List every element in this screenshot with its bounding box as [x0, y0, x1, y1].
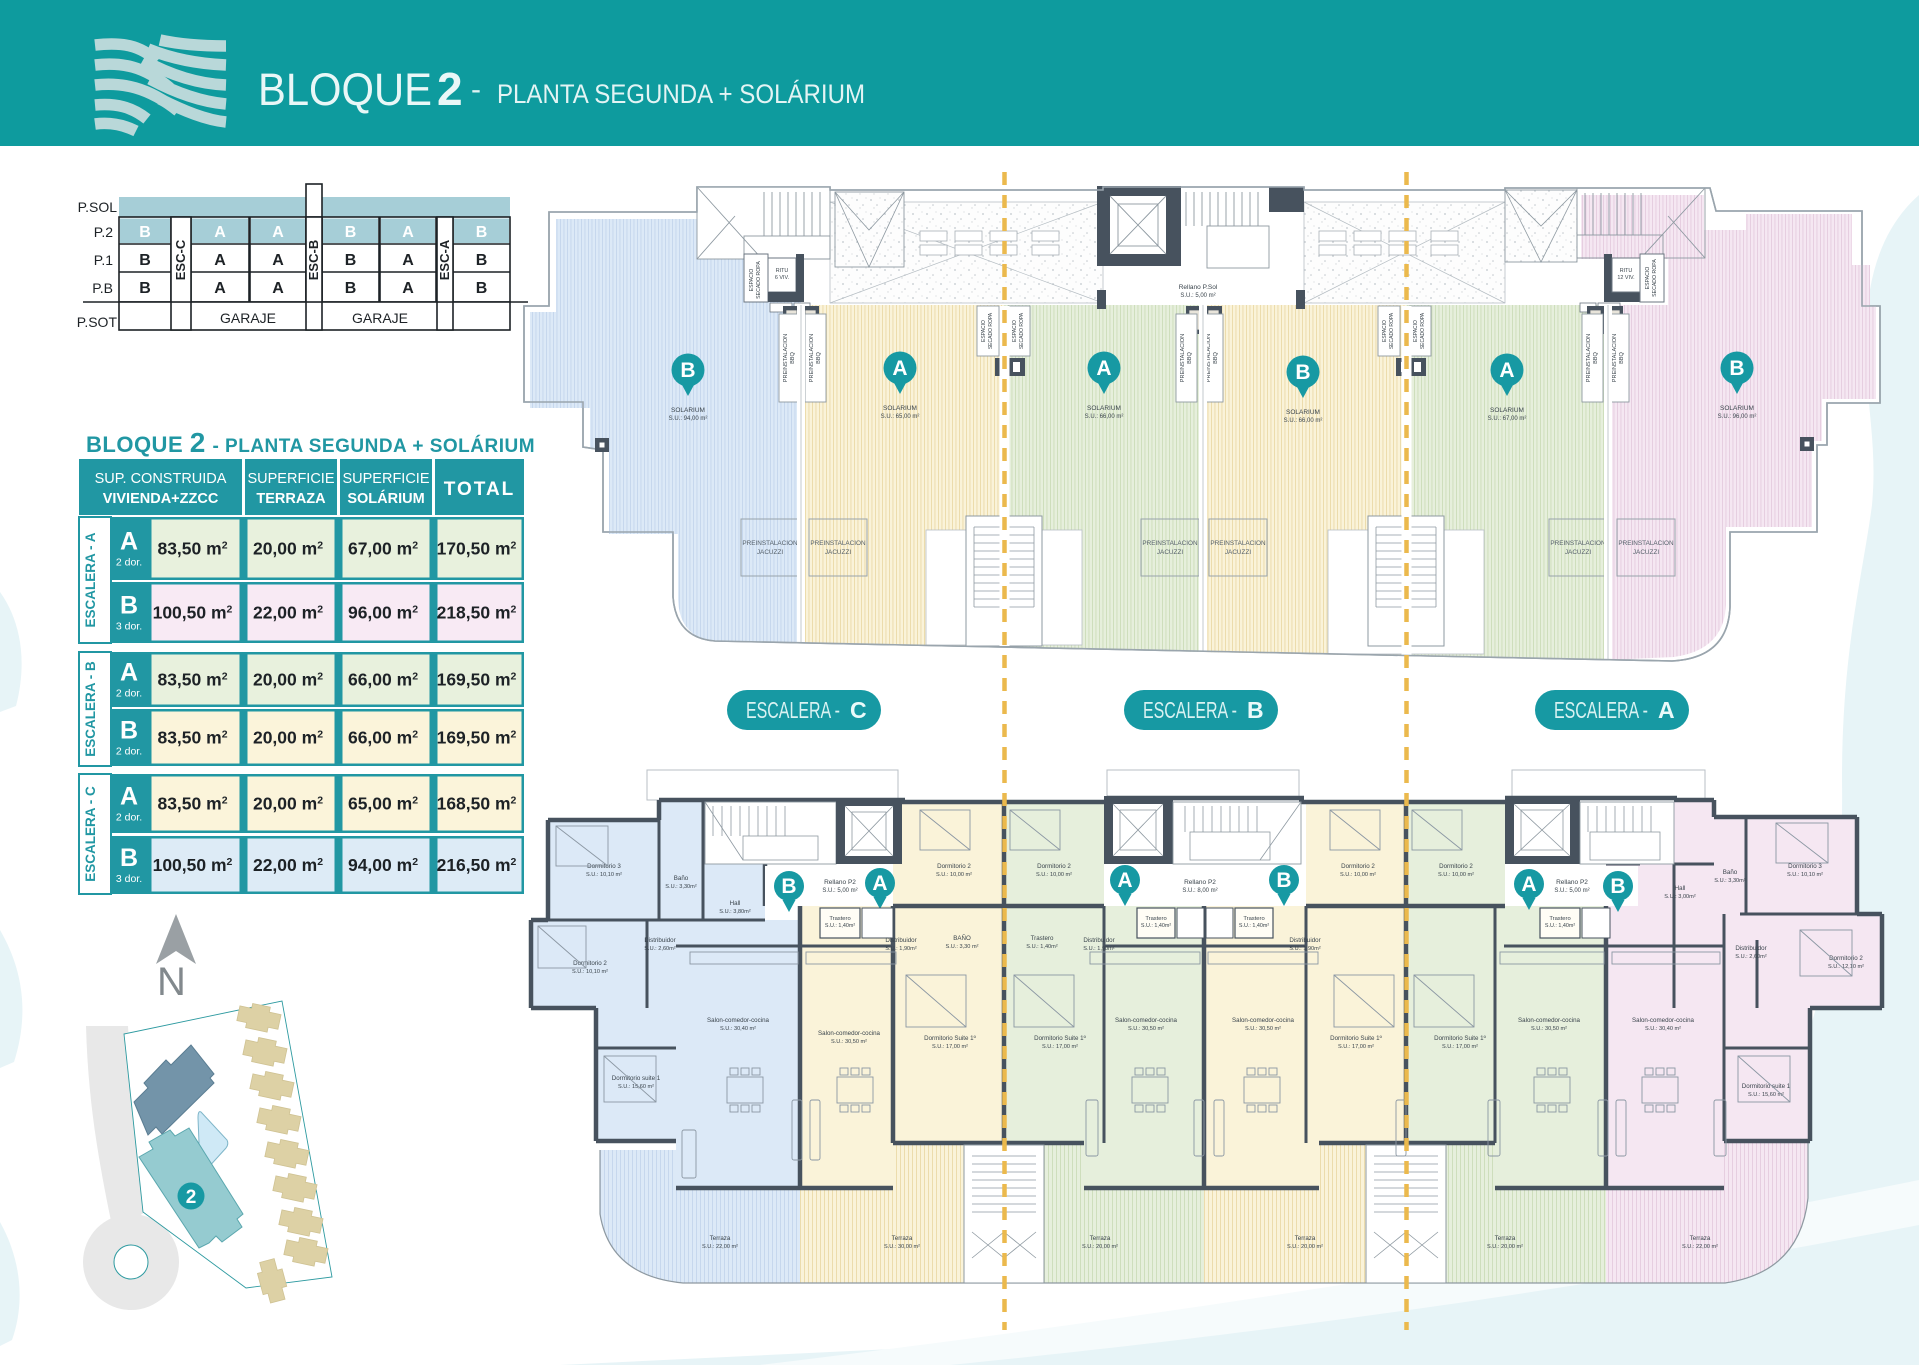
- svg-text:SECADO ROPA: SECADO ROPA: [1019, 312, 1025, 349]
- svg-text:Terraza: Terraza: [1690, 1235, 1711, 1242]
- svg-text:169,50 m2: 169,50 m2: [437, 728, 517, 748]
- svg-text:VIVIENDA+ZZCC: VIVIENDA+ZZCC: [103, 491, 219, 507]
- svg-text:216,50 m2: 216,50 m2: [437, 855, 517, 875]
- svg-text:B: B: [680, 359, 695, 382]
- svg-text:2 dor.: 2 dor.: [116, 746, 142, 758]
- svg-text:PREINSTALACION: PREINSTALACION: [1612, 334, 1618, 382]
- svg-text:PREINSTALACION: PREINSTALACION: [783, 334, 789, 382]
- svg-text:Salon-comedor-cocina: Salon-comedor-cocina: [818, 1030, 880, 1037]
- svg-text:S.U.: 22,00 m²: S.U.: 22,00 m²: [702, 1244, 738, 1250]
- svg-text:SOLARIUM: SOLARIUM: [883, 405, 917, 412]
- svg-text:Dormitorio Suite 1º: Dormitorio Suite 1º: [1034, 1035, 1087, 1042]
- svg-text:ESC-B: ESC-B: [306, 240, 321, 280]
- svg-text:RITU: RITU: [776, 268, 789, 274]
- svg-text:S.U.: 1,40m²: S.U.: 1,40m²: [1141, 923, 1171, 929]
- svg-text:B: B: [1276, 869, 1291, 892]
- svg-text:Dormitorio Suite 1º: Dormitorio Suite 1º: [1434, 1035, 1487, 1042]
- svg-text:S.U.: 30,40 m²: S.U.: 30,40 m²: [1645, 1026, 1681, 1032]
- svg-text:B: B: [120, 844, 138, 872]
- svg-text:100,50 m2: 100,50 m2: [153, 855, 233, 875]
- svg-text:A: A: [1096, 357, 1111, 380]
- svg-text:Baño: Baño: [674, 875, 689, 882]
- svg-text:SOLARIUM: SOLARIUM: [1087, 405, 1121, 412]
- svg-text:Distribuidor: Distribuidor: [885, 937, 916, 944]
- svg-text:SOLARIUM: SOLARIUM: [671, 407, 705, 414]
- svg-text:Terraza: Terraza: [710, 1235, 731, 1242]
- svg-text:B: B: [476, 280, 488, 297]
- svg-text:PREINSTALACION: PREINSTALACION: [1180, 334, 1186, 382]
- svg-text:S.U.: 1,40m²: S.U.: 1,40m²: [1026, 944, 1058, 950]
- svg-text:S.U.: 10,10 m²: S.U.: 10,10 m²: [572, 969, 608, 975]
- svg-text:TERRAZA: TERRAZA: [256, 491, 326, 507]
- svg-text:A: A: [1499, 359, 1514, 382]
- svg-text:100,50 m2: 100,50 m2: [153, 603, 233, 623]
- svg-text:S.U.: 30,50 m²: S.U.: 30,50 m²: [831, 1039, 867, 1045]
- svg-text:ESPACIO: ESPACIO: [1382, 320, 1388, 342]
- svg-text:Dormitorio 2: Dormitorio 2: [1037, 863, 1071, 870]
- svg-text:A: A: [402, 252, 414, 269]
- svg-text:Dormitorio Suite 1º: Dormitorio Suite 1º: [1330, 1035, 1383, 1042]
- svg-text:A: A: [402, 224, 414, 241]
- svg-text:218,50 m2: 218,50 m2: [437, 603, 517, 623]
- svg-text:Salon-comedor-cocina: Salon-comedor-cocina: [1232, 1017, 1294, 1024]
- svg-text:Terraza: Terraza: [892, 1235, 913, 1242]
- svg-text:S.U.: 30,00 m²: S.U.: 30,00 m²: [884, 1244, 920, 1250]
- svg-text:PREINSTALACION: PREINSTALACION: [1550, 540, 1606, 547]
- svg-text:Rellano P2: Rellano P2: [824, 879, 856, 886]
- svg-text:A: A: [272, 280, 284, 297]
- svg-text:S.U.: 3,80m²: S.U.: 3,80m²: [719, 909, 751, 915]
- svg-text:SOLARIUM: SOLARIUM: [1490, 407, 1524, 414]
- svg-text:83,50 m2: 83,50 m2: [157, 728, 227, 748]
- svg-text:B: B: [1247, 697, 1264, 723]
- svg-text:2 dor.: 2 dor.: [116, 688, 142, 700]
- svg-text:P.B: P.B: [92, 280, 113, 296]
- svg-text:S.U.: 30,50 m²: S.U.: 30,50 m²: [1128, 1026, 1164, 1032]
- svg-text:ESPACIO: ESPACIO: [749, 269, 755, 292]
- svg-text:S.U.: 1,90m²: S.U.: 1,90m²: [1083, 946, 1115, 952]
- svg-text:S.U.: 17,00 m²: S.U.: 17,00 m²: [932, 1044, 968, 1050]
- svg-text:SECADO ROPA: SECADO ROPA: [988, 312, 994, 349]
- svg-text:SECADO ROPA: SECADO ROPA: [1420, 312, 1426, 349]
- svg-text:Hall: Hall: [730, 900, 741, 907]
- svg-text:S.U.: 22,00 m²: S.U.: 22,00 m²: [1682, 1244, 1718, 1250]
- svg-text:S.U.: 20,00 m²: S.U.: 20,00 m²: [1082, 1244, 1118, 1250]
- svg-text:S.U.: 2,60m²: S.U.: 2,60m²: [1735, 954, 1767, 960]
- svg-text:B: B: [139, 252, 151, 269]
- svg-text:PREINSTALACION: PREINSTALACION: [810, 540, 866, 547]
- svg-text:20,00 m2: 20,00 m2: [253, 728, 323, 748]
- svg-text:BLOQUE: BLOQUE: [258, 64, 432, 115]
- svg-text:S.U.: 1,90m²: S.U.: 1,90m²: [885, 946, 917, 952]
- svg-text:ESPACIO: ESPACIO: [1012, 320, 1018, 342]
- svg-text:SUPERFICIE: SUPERFICIE: [342, 471, 429, 487]
- svg-text:S.U.: 17,00 m²: S.U.: 17,00 m²: [1442, 1044, 1478, 1050]
- svg-text:JACUZZI: JACUZZI: [1157, 549, 1183, 556]
- svg-text:A: A: [1521, 873, 1536, 896]
- svg-text:A: A: [214, 252, 226, 269]
- svg-text:83,50 m2: 83,50 m2: [157, 539, 227, 559]
- svg-text:S.U.: 65,00 m²: S.U.: 65,00 m²: [881, 414, 920, 420]
- svg-text:JACUZZI: JACUZZI: [757, 549, 783, 556]
- svg-text:P.2: P.2: [94, 224, 113, 240]
- svg-text:B: B: [345, 224, 357, 241]
- svg-text:BBQ: BBQ: [790, 351, 796, 363]
- svg-text:B: B: [345, 280, 357, 297]
- svg-text:A: A: [272, 224, 284, 241]
- svg-text:Trastero: Trastero: [829, 916, 850, 922]
- svg-text:ESCALERA -: ESCALERA -: [1554, 697, 1648, 723]
- svg-text:Trastero: Trastero: [1031, 935, 1054, 942]
- svg-text:B: B: [139, 280, 151, 297]
- svg-text:Dormitorio 3: Dormitorio 3: [1788, 863, 1822, 870]
- svg-text:JACUZZI: JACUZZI: [825, 549, 851, 556]
- svg-text:S.U.: 17,00 m²: S.U.: 17,00 m²: [1338, 1044, 1374, 1050]
- svg-text:SUPERFICIE: SUPERFICIE: [247, 471, 334, 487]
- svg-text:Distribuidor: Distribuidor: [644, 937, 675, 944]
- svg-text:BBQ: BBQ: [1619, 351, 1625, 363]
- svg-text:83,50 m2: 83,50 m2: [157, 670, 227, 690]
- svg-text:ESPACIO: ESPACIO: [981, 320, 987, 342]
- svg-text:22,00 m2: 22,00 m2: [253, 855, 323, 875]
- svg-text:A: A: [120, 659, 138, 687]
- svg-text:66,00 m2: 66,00 m2: [348, 670, 418, 690]
- svg-text:C: C: [850, 697, 867, 723]
- svg-text:67,00 m2: 67,00 m2: [348, 539, 418, 559]
- svg-text:Rellano P2: Rellano P2: [1556, 879, 1588, 886]
- svg-text:83,50 m2: 83,50 m2: [157, 794, 227, 814]
- svg-text:ESCALERA - B: ESCALERA - B: [83, 661, 98, 757]
- svg-text:Trastero: Trastero: [1243, 916, 1264, 922]
- svg-text:PREINSTALACION: PREINSTALACION: [1586, 334, 1592, 382]
- svg-text:B: B: [476, 224, 488, 241]
- svg-text:PREINSTALACION: PREINSTALACION: [1142, 540, 1198, 547]
- svg-text:S.U.: 8,00 m²: S.U.: 8,00 m²: [1182, 888, 1217, 894]
- svg-text:S.U.: 3,30m²: S.U.: 3,30m²: [665, 884, 697, 890]
- svg-text:S.U.: 30,50 m²: S.U.: 30,50 m²: [1245, 1026, 1281, 1032]
- svg-text:P.SOL: P.SOL: [78, 199, 118, 215]
- svg-text:Trastero: Trastero: [1549, 916, 1570, 922]
- svg-text:B: B: [1295, 361, 1310, 384]
- svg-text:Rellano P2: Rellano P2: [1184, 879, 1216, 886]
- svg-text:S.U.: 1,90m²: S.U.: 1,90m²: [1289, 946, 1321, 952]
- svg-text:S.U.: 20,00 m²: S.U.: 20,00 m²: [1487, 1244, 1523, 1250]
- svg-text:S.U.: 66,00 m²: S.U.: 66,00 m²: [1085, 414, 1124, 420]
- svg-text:S.U.: 10,00 m²: S.U.: 10,00 m²: [1438, 872, 1474, 878]
- svg-text:S.U.: 10,10 m²: S.U.: 10,10 m²: [1787, 872, 1823, 878]
- svg-text:Terraza: Terraza: [1495, 1235, 1516, 1242]
- svg-text:B: B: [781, 875, 796, 898]
- svg-text:SECADO ROPA: SECADO ROPA: [1389, 312, 1395, 349]
- svg-text:169,50 m2: 169,50 m2: [437, 670, 517, 690]
- svg-text:S.U.: 1,40m²: S.U.: 1,40m²: [825, 923, 855, 929]
- svg-text:BBQ: BBQ: [1213, 351, 1219, 363]
- svg-text:B: B: [139, 224, 151, 241]
- svg-text:BBQ: BBQ: [1187, 351, 1193, 363]
- svg-text:B: B: [1729, 357, 1744, 380]
- svg-text:B: B: [1610, 875, 1625, 898]
- svg-text:168,50 m2: 168,50 m2: [437, 794, 517, 814]
- svg-text:2 dor.: 2 dor.: [116, 557, 142, 569]
- svg-text:S.U.: 30,40 m²: S.U.: 30,40 m²: [720, 1026, 756, 1032]
- svg-text:ESC-C: ESC-C: [173, 239, 188, 280]
- svg-text:ESCALERA -: ESCALERA -: [746, 697, 840, 723]
- svg-text:SOLARIUM: SOLARIUM: [1720, 405, 1754, 412]
- svg-text:S.U.: 66,00 m²: S.U.: 66,00 m²: [1284, 418, 1323, 424]
- svg-text:PLANTA SEGUNDA + SOLÁRIUM: PLANTA SEGUNDA + SOLÁRIUM: [497, 79, 865, 109]
- svg-text:Salon-comedor-cocina: Salon-comedor-cocina: [1632, 1017, 1694, 1024]
- svg-text:GARAJE: GARAJE: [352, 310, 408, 326]
- svg-text:BBQ: BBQ: [1593, 351, 1599, 363]
- svg-text:6 VIV.: 6 VIV.: [775, 275, 789, 281]
- svg-text:S.U.: 1,40m²: S.U.: 1,40m²: [1239, 923, 1269, 929]
- svg-text:96,00 m2: 96,00 m2: [348, 603, 418, 623]
- svg-text:20,00 m2: 20,00 m2: [253, 794, 323, 814]
- svg-text:ESPACIO: ESPACIO: [1645, 267, 1651, 290]
- svg-text:S.U.: 20,00 m²: S.U.: 20,00 m²: [1287, 1244, 1323, 1250]
- svg-text:S.U.: 2,60m²: S.U.: 2,60m²: [644, 946, 676, 952]
- svg-text:S.U.: 10,00 m²: S.U.: 10,00 m²: [1036, 872, 1072, 878]
- svg-text:-: -: [471, 73, 481, 106]
- svg-text:2: 2: [437, 63, 463, 115]
- svg-text:S.U.: 17,00 m²: S.U.: 17,00 m²: [1042, 1044, 1078, 1050]
- svg-text:170,50 m2: 170,50 m2: [437, 539, 517, 559]
- svg-text:P.SOT: P.SOT: [77, 314, 118, 330]
- svg-text:Distribuidor: Distribuidor: [1289, 937, 1320, 944]
- svg-text:Distribuidor: Distribuidor: [1083, 937, 1114, 944]
- svg-text:ESCALERA -: ESCALERA -: [1143, 697, 1237, 723]
- svg-text:GARAJE: GARAJE: [220, 310, 276, 326]
- svg-text:JACUZZI: JACUZZI: [1225, 549, 1251, 556]
- svg-text:JACUZZI: JACUZZI: [1633, 549, 1659, 556]
- svg-text:S.U.: 5,00 m²: S.U.: 5,00 m²: [1554, 888, 1589, 894]
- svg-text:Terraza: Terraza: [1295, 1235, 1316, 1242]
- svg-text:A: A: [120, 528, 138, 556]
- svg-text:Salon-comedor-cocina: Salon-comedor-cocina: [1115, 1017, 1177, 1024]
- svg-text:S.U.: 5,00 m²: S.U.: 5,00 m²: [822, 888, 857, 894]
- svg-text:2: 2: [186, 1187, 197, 1208]
- svg-text:94,00 m2: 94,00 m2: [348, 855, 418, 875]
- svg-text:S.U.: 1,40m²: S.U.: 1,40m²: [1545, 923, 1575, 929]
- svg-text:S.U.: 3,30 m²: S.U.: 3,30 m²: [946, 944, 979, 950]
- svg-text:B: B: [120, 592, 138, 620]
- svg-text:SECADO ROPA: SECADO ROPA: [1652, 259, 1658, 297]
- svg-text:A: A: [120, 783, 138, 811]
- svg-text:Hall: Hall: [1675, 885, 1686, 892]
- svg-text:65,00 m2: 65,00 m2: [348, 794, 418, 814]
- svg-text:A: A: [402, 280, 414, 297]
- svg-text:Dormitorio 2: Dormitorio 2: [1439, 863, 1473, 870]
- svg-text:B: B: [120, 717, 138, 745]
- svg-text:S.U.: 94,00 m²: S.U.: 94,00 m²: [669, 416, 708, 422]
- svg-text:B: B: [345, 252, 357, 269]
- svg-text:A: A: [892, 357, 907, 380]
- svg-text:SOLÁRIUM: SOLÁRIUM: [347, 490, 424, 507]
- svg-text:JACUZZI: JACUZZI: [1565, 549, 1591, 556]
- svg-text:TOTAL: TOTAL: [444, 479, 516, 500]
- svg-text:BBQ: BBQ: [816, 351, 822, 363]
- svg-text:S.U.: 10,10 m²: S.U.: 10,10 m²: [586, 872, 622, 878]
- svg-text:S.U.: 30,50 m²: S.U.: 30,50 m²: [1531, 1026, 1567, 1032]
- svg-text:A: A: [1658, 697, 1675, 723]
- svg-text:PREINSTALACION: PREINSTALACION: [742, 540, 798, 547]
- svg-text:Distribuidor: Distribuidor: [1735, 945, 1766, 952]
- svg-text:A: A: [214, 224, 226, 241]
- svg-text:PREINSTALACION: PREINSTALACION: [809, 334, 815, 382]
- svg-text:Salon-comedor-cocina: Salon-comedor-cocina: [707, 1017, 769, 1024]
- svg-text:SOLARIUM: SOLARIUM: [1286, 409, 1320, 416]
- svg-text:S.U.: 10,00 m²: S.U.: 10,00 m²: [936, 872, 972, 878]
- svg-text:B: B: [476, 252, 488, 269]
- svg-text:ESCALERA - C: ESCALERA - C: [83, 786, 98, 882]
- svg-text:A: A: [272, 252, 284, 269]
- svg-text:S.U.: 96,00 m²: S.U.: 96,00 m²: [1718, 414, 1757, 420]
- svg-text:S.U.: 3,30m²: S.U.: 3,30m²: [1714, 878, 1746, 884]
- svg-text:A: A: [1117, 869, 1132, 892]
- svg-text:A: A: [214, 280, 226, 297]
- svg-text:S.U.: 67,00 m²: S.U.: 67,00 m²: [1488, 416, 1527, 422]
- svg-text:Salon-comedor-cocina: Salon-comedor-cocina: [1518, 1017, 1580, 1024]
- svg-text:Trastero: Trastero: [1145, 916, 1166, 922]
- svg-text:Terraza: Terraza: [1090, 1235, 1111, 1242]
- svg-text:S.U.: 3,00m²: S.U.: 3,00m²: [1664, 894, 1696, 900]
- svg-text:N: N: [157, 960, 186, 1004]
- svg-text:66,00 m2: 66,00 m2: [348, 728, 418, 748]
- svg-text:22,00 m2: 22,00 m2: [253, 603, 323, 623]
- svg-text:A: A: [872, 872, 887, 895]
- svg-text:3 dor.: 3 dor.: [116, 873, 142, 885]
- svg-text:Dormitorio 2: Dormitorio 2: [1341, 863, 1375, 870]
- svg-text:PREINSTALACION: PREINSTALACION: [1618, 540, 1674, 547]
- svg-text:3 dor.: 3 dor.: [116, 621, 142, 633]
- svg-text:20,00 m2: 20,00 m2: [253, 670, 323, 690]
- svg-text:P.1: P.1: [94, 252, 113, 268]
- svg-text:12 VIV.: 12 VIV.: [1617, 275, 1634, 281]
- svg-text:S.U.: 5,00 m²: S.U.: 5,00 m²: [1180, 293, 1215, 299]
- svg-text:ESCALERA - A: ESCALERA - A: [83, 532, 98, 627]
- svg-text:20,00 m2: 20,00 m2: [253, 539, 323, 559]
- svg-text:SUP. CONSTRUIDA: SUP. CONSTRUIDA: [95, 471, 227, 487]
- svg-text:Baño: Baño: [1723, 869, 1738, 876]
- svg-text:Dormitorio Suite 1º: Dormitorio Suite 1º: [924, 1035, 977, 1042]
- svg-text:Rellano P.Sol: Rellano P.Sol: [1179, 284, 1218, 291]
- svg-text:SECADO ROPA: SECADO ROPA: [756, 261, 762, 299]
- svg-text:2 dor.: 2 dor.: [116, 812, 142, 824]
- svg-text:RITU: RITU: [1620, 268, 1633, 274]
- svg-text:ESPACIO: ESPACIO: [1413, 320, 1419, 342]
- svg-text:Dormitorio 2: Dormitorio 2: [937, 863, 971, 870]
- svg-text:PREINSTALACION: PREINSTALACION: [1210, 540, 1266, 547]
- svg-text:ESC-A: ESC-A: [437, 239, 452, 280]
- svg-text:S.U.: 10,00 m²: S.U.: 10,00 m²: [1340, 872, 1376, 878]
- svg-text:BAÑO: BAÑO: [953, 935, 971, 942]
